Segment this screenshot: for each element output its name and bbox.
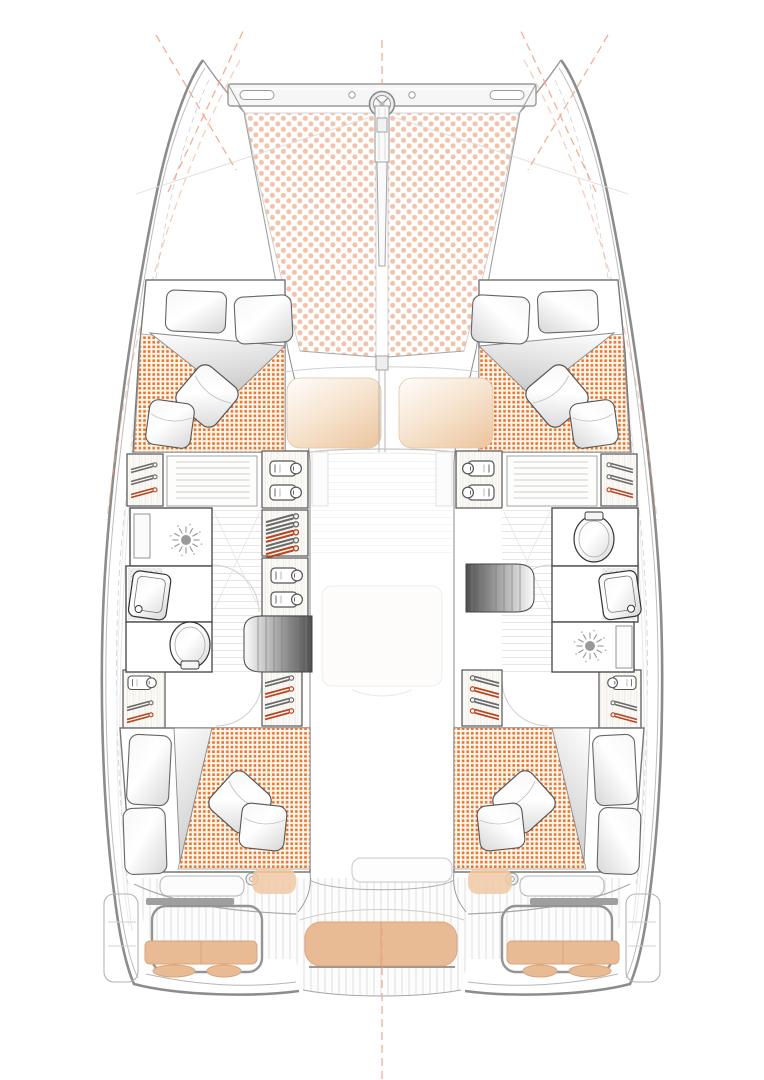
footrest [153, 965, 195, 977]
cabin-forward: Forward double cabin [133, 280, 293, 452]
mast-step [376, 356, 388, 370]
shirt-icon [271, 592, 302, 607]
toilet-port: Toilet [126, 622, 212, 672]
cushion [238, 802, 287, 851]
head-starboard: Starboard bathroom Toilet Washbasin Show… [552, 508, 642, 672]
pillow [234, 295, 293, 345]
shirt-icon [271, 568, 302, 583]
shirt-icon [270, 485, 301, 500]
sink-starboard: Washbasin [552, 566, 642, 622]
floor-plan-canvas: Catamaran interior and deck layout plan [0, 0, 764, 1080]
head-port: Port bathroom Shower Washbasin Toilet [126, 508, 212, 672]
stairs-port: Port companionway stairs [244, 616, 312, 672]
cabin-aft: Aft double cabin [120, 728, 310, 875]
deck-hatch [160, 876, 244, 896]
sunpad-starboard [399, 378, 493, 448]
washbasin [128, 570, 172, 621]
beam-fitting [349, 92, 355, 98]
beam-slot [490, 91, 524, 100]
pillow [123, 807, 167, 874]
saloon-cabinet [436, 452, 452, 506]
shirt-icon [128, 676, 156, 690]
cockpit-corner-seat [252, 868, 296, 894]
sink-port: Washbasin [126, 566, 212, 622]
toilet-seat-hinge [181, 661, 199, 669]
toilet-starboard: Toilet [552, 508, 638, 566]
pillow [165, 290, 227, 334]
corridor-aft [165, 672, 262, 728]
shower-shelf [616, 626, 632, 668]
anchor-roller [377, 118, 387, 132]
pillow [126, 734, 172, 806]
beam-fitting [409, 92, 415, 98]
beam-slot [240, 91, 274, 100]
cushion [145, 399, 196, 450]
floor-plan-page: Catamaran interior and deck layout plan [0, 0, 764, 1080]
footrest [207, 965, 241, 977]
sunpad-port [287, 378, 381, 448]
shirt-icon [270, 461, 301, 476]
shower-shelf [134, 514, 150, 558]
saloon-cabinet [312, 452, 328, 506]
saloon-aft-door [352, 858, 452, 882]
shower-port: Shower [130, 508, 212, 566]
lockers-mid-port: Wardrobe [262, 510, 308, 616]
stairs-starboard: Starboard companionway stairs [466, 564, 534, 612]
toilet-seat-hinge [585, 512, 603, 520]
saloon-sole [312, 458, 452, 558]
saloon-table-hint [322, 586, 442, 686]
washbasin [598, 570, 642, 621]
shower-starboard: Shower [552, 622, 634, 672]
wardrobe-row-forward: Wardrobe [127, 451, 308, 508]
helm-instrument-bar [146, 898, 234, 905]
